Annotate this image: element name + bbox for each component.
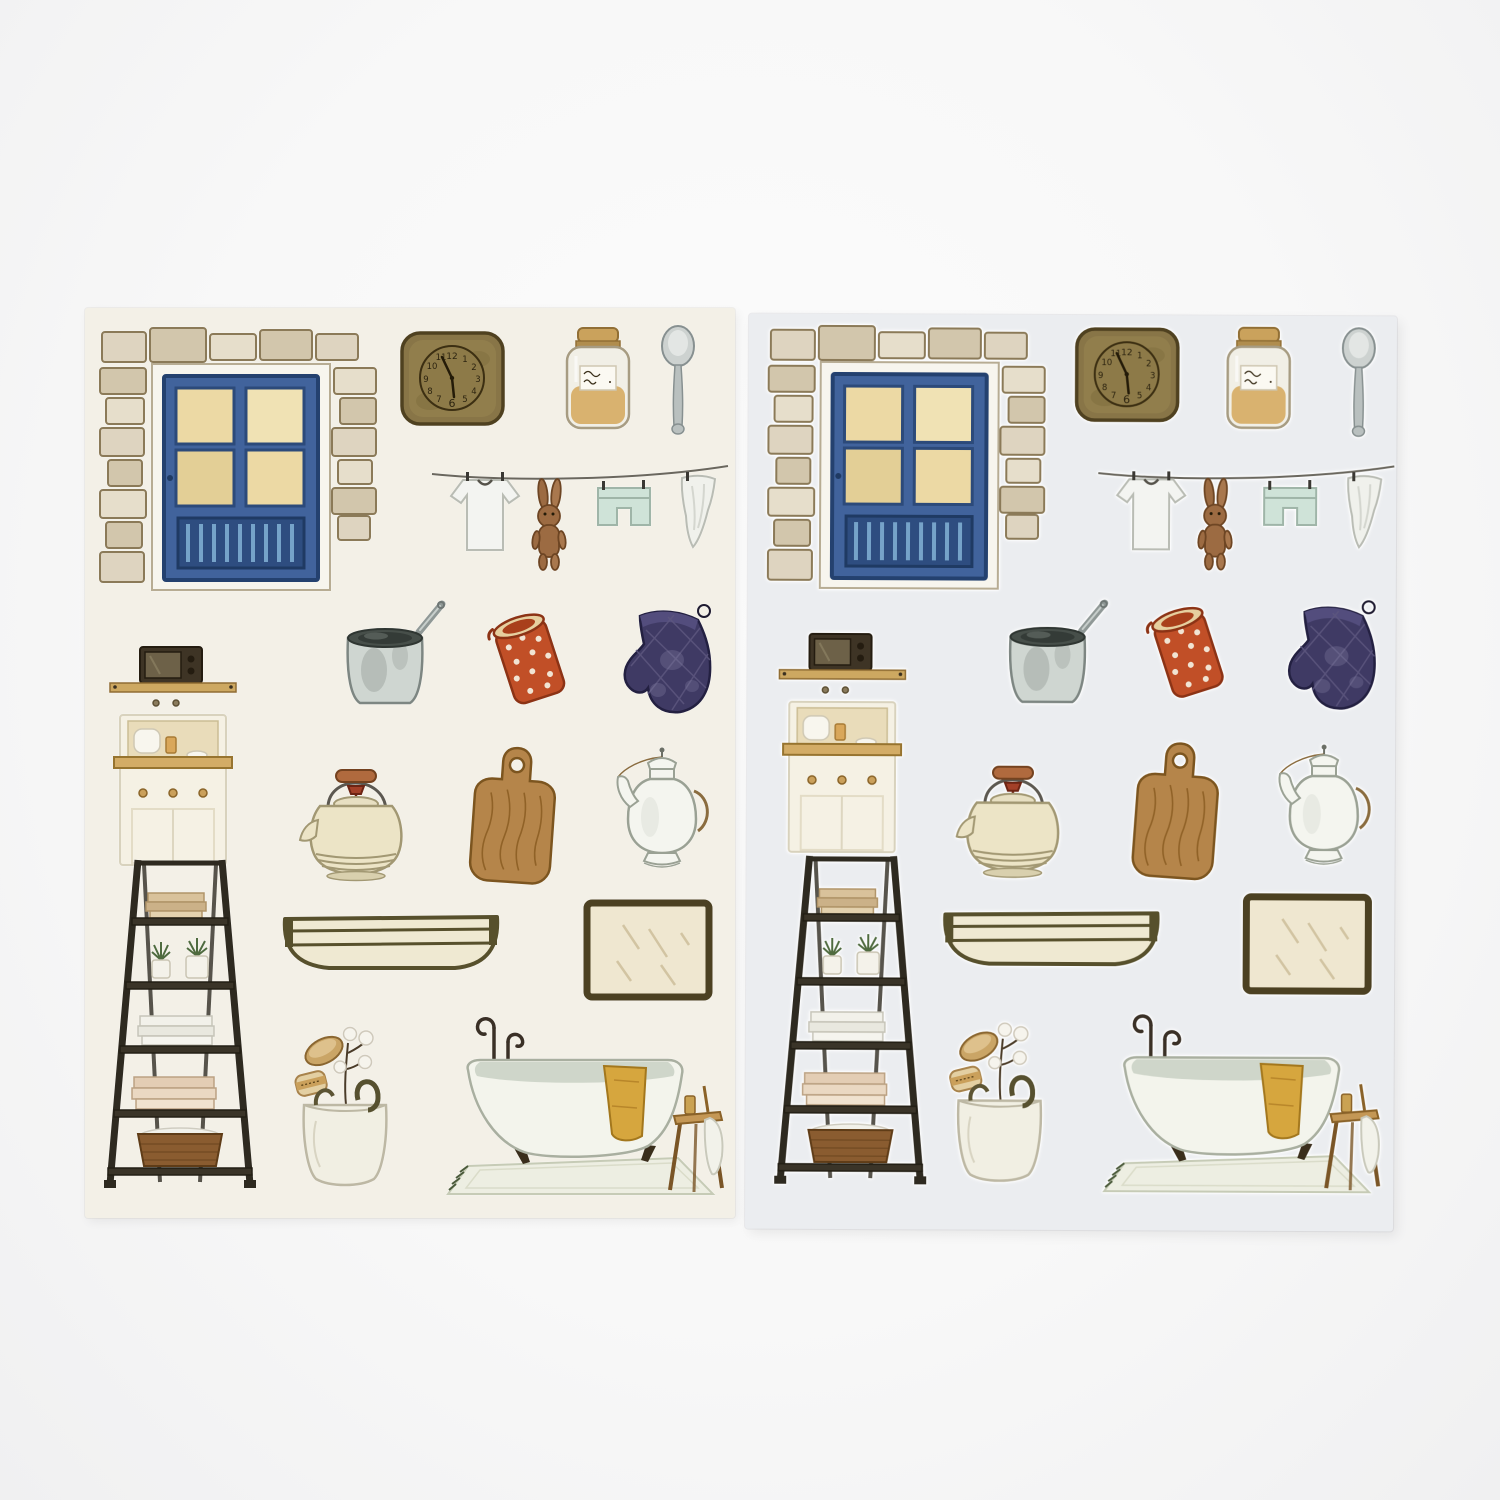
sticker-clock [400, 331, 505, 426]
sticker-cutting-board [1128, 737, 1224, 880]
sticker-saucepan [318, 598, 446, 710]
sticker-oven-mitt [616, 600, 721, 720]
sticker-door [766, 324, 1047, 597]
sticker-laundry-bag [940, 1016, 1059, 1189]
sticker-kettle [298, 748, 413, 883]
sticker-cutting-board [465, 742, 560, 885]
sticker-coffee-pot [610, 745, 710, 867]
sticker-sheet-right [745, 314, 1397, 1232]
sticker-jar [553, 326, 643, 431]
sticker-oven-mitt [1280, 596, 1386, 716]
sticker-spoon [1333, 326, 1383, 438]
sticker-clothesline [1096, 451, 1397, 592]
photo-of-sticker-sheets [0, 0, 1500, 1500]
sticker-bathtub [1084, 1005, 1380, 1198]
sticker-cabinet [767, 628, 918, 861]
sticker-clothesline [430, 452, 730, 592]
sticker-door [98, 326, 378, 598]
sticker-spoon [653, 324, 703, 436]
sticker-cabinet [98, 641, 248, 873]
sticker-polka-jug [1136, 599, 1236, 704]
sticker-polka-jug [478, 606, 578, 711]
sticker-sheet-left [85, 308, 735, 1218]
sticker-mirror [583, 899, 713, 1001]
sticker-jar [1213, 326, 1303, 431]
sticker-ladder-shelf [774, 852, 927, 1187]
sticker-trough-shelf [277, 913, 505, 973]
sticker-trough-shelf [937, 908, 1165, 969]
sticker-mirror [1242, 893, 1372, 996]
sticker-laundry-bag [286, 1021, 404, 1193]
sticker-ladder-shelf [104, 856, 256, 1190]
sticker-kettle [955, 744, 1071, 880]
sticker-bathtub [428, 1008, 723, 1200]
sticker-clock [1075, 327, 1180, 422]
sticker-saucepan [980, 597, 1108, 710]
sticker-coffee-pot [1272, 742, 1373, 864]
